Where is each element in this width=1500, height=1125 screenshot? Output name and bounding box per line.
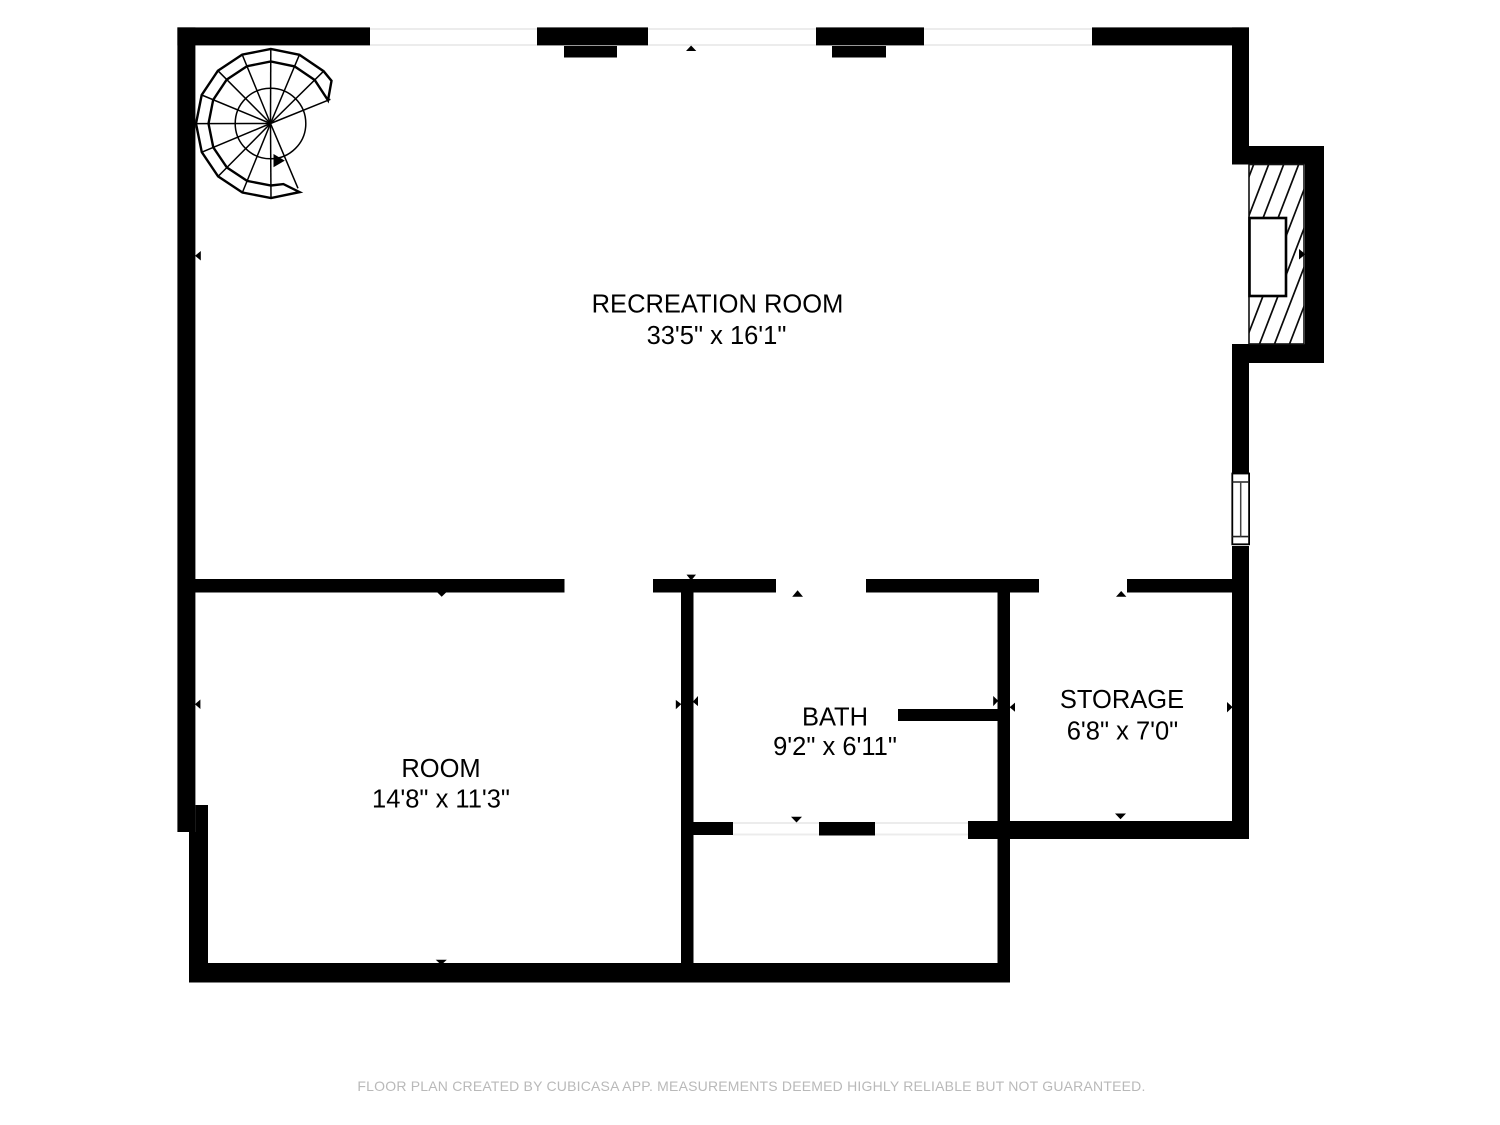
svg-text:33'5" x 16'1": 33'5" x 16'1" (647, 322, 787, 350)
svg-text:BATH: BATH (802, 704, 868, 732)
svg-text:RECREATION ROOM: RECREATION ROOM (592, 291, 844, 319)
svg-text:9'2" x 6'11": 9'2" x 6'11" (773, 733, 897, 761)
svg-text:STORAGE: STORAGE (1060, 686, 1184, 714)
svg-text:6'8" x 7'0": 6'8" x 7'0" (1067, 718, 1179, 746)
svg-text:FLOOR PLAN CREATED BY CUBICASA: FLOOR PLAN CREATED BY CUBICASA APP. MEAS… (357, 1078, 1145, 1094)
svg-text:ROOM: ROOM (401, 755, 480, 783)
svg-text:14'8" x 11'3": 14'8" x 11'3" (372, 786, 510, 814)
